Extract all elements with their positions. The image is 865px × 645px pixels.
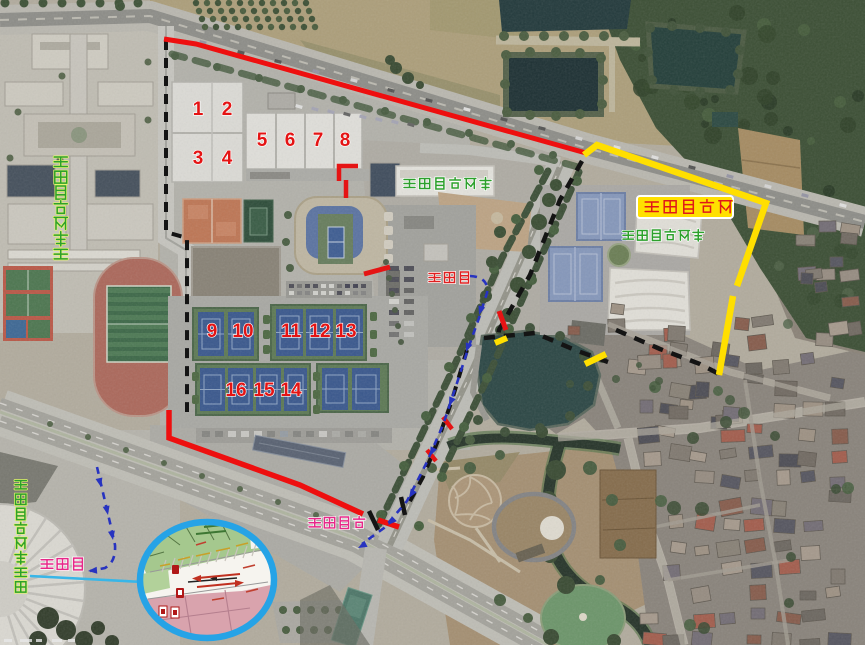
svg-text:8: 8 xyxy=(340,130,351,151)
svg-text:2: 2 xyxy=(222,99,233,120)
svg-text:11: 11 xyxy=(281,321,302,342)
svg-text:16: 16 xyxy=(225,380,246,401)
svg-text:1: 1 xyxy=(193,99,204,120)
svg-text:5: 5 xyxy=(257,130,268,151)
svg-text:14: 14 xyxy=(280,380,302,401)
svg-text:3: 3 xyxy=(193,148,204,169)
svg-text:13: 13 xyxy=(335,321,356,342)
svg-text:9: 9 xyxy=(207,321,218,342)
svg-text:4: 4 xyxy=(222,148,233,169)
svg-text:12: 12 xyxy=(309,321,330,342)
svg-text:6: 6 xyxy=(285,130,296,151)
svg-text:7: 7 xyxy=(313,130,324,151)
svg-text:10: 10 xyxy=(232,321,253,342)
svg-text:15: 15 xyxy=(253,380,275,401)
